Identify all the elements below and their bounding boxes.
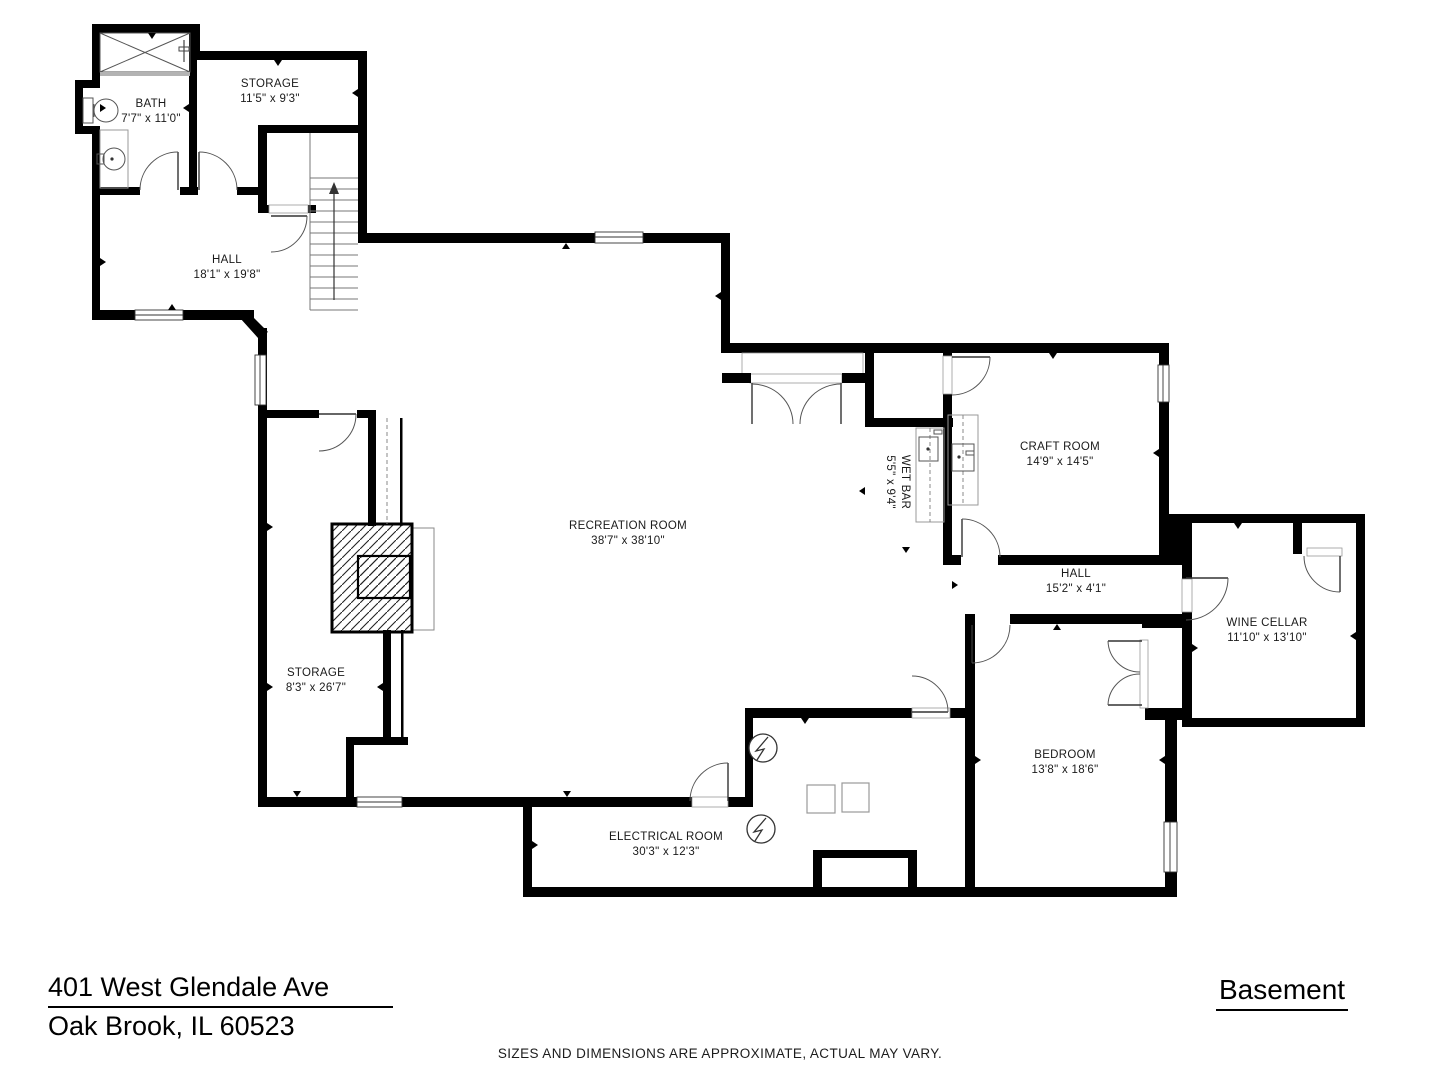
room-label-storage-upper: STORAGE11'5" x 9'3" <box>240 77 299 107</box>
window-icon <box>595 232 643 243</box>
floorplan-drawing <box>0 0 1440 1080</box>
room-label-bath: BATH7'7" x 11'0" <box>121 97 180 127</box>
room-label-bedroom: BEDROOM13'8" x 18'6" <box>1032 748 1099 778</box>
room-label-wine-cellar: WINE CELLAR11'10" x 13'10" <box>1226 616 1307 646</box>
property-address: 401 West Glendale Ave Oak Brook, IL 6052… <box>48 972 393 1042</box>
address-line1: 401 West Glendale Ave <box>48 972 393 1008</box>
fireplace-icon <box>332 524 434 632</box>
window-icon <box>1158 365 1169 402</box>
windows <box>135 232 1177 872</box>
wet-bar-counter-icon <box>916 428 944 522</box>
room-label-craft-room: CRAFT ROOM14'9" x 14'5" <box>1020 440 1100 470</box>
disclaimer-text: SIZES AND DIMENSIONS ARE APPROXIMATE, AC… <box>0 1046 1440 1061</box>
address-line2: Oak Brook, IL 60523 <box>48 1011 393 1042</box>
walls <box>75 24 1365 897</box>
window-icon <box>357 797 402 807</box>
room-label-hall-small: HALL15'2" x 4'1" <box>1046 567 1106 597</box>
sink-vanity-icon <box>97 130 128 188</box>
craft-counter-icon <box>948 415 978 505</box>
window-icon <box>135 310 183 320</box>
window-icon <box>255 355 266 405</box>
room-label-electrical: ELECTRICAL ROOM30'3" x 12'3" <box>609 830 723 860</box>
floor-name: Basement <box>1216 974 1348 1011</box>
window-icon <box>1164 822 1177 872</box>
room-label-recreation: RECREATION ROOM38'7" x 38'10" <box>569 519 687 549</box>
room-label-hall-main: HALL18'1" x 19'8" <box>194 253 261 283</box>
shower-icon <box>100 33 190 76</box>
room-label-storage-lower: STORAGE8'3" x 26'7" <box>286 666 346 696</box>
equipment-boxes <box>807 783 869 813</box>
floorplan-page: { "footer": { "address_line1": "401 West… <box>0 0 1440 1080</box>
room-label-wet-bar: WET BAR5'5" x 9'4" <box>882 455 912 509</box>
foundation-notch <box>822 858 908 887</box>
